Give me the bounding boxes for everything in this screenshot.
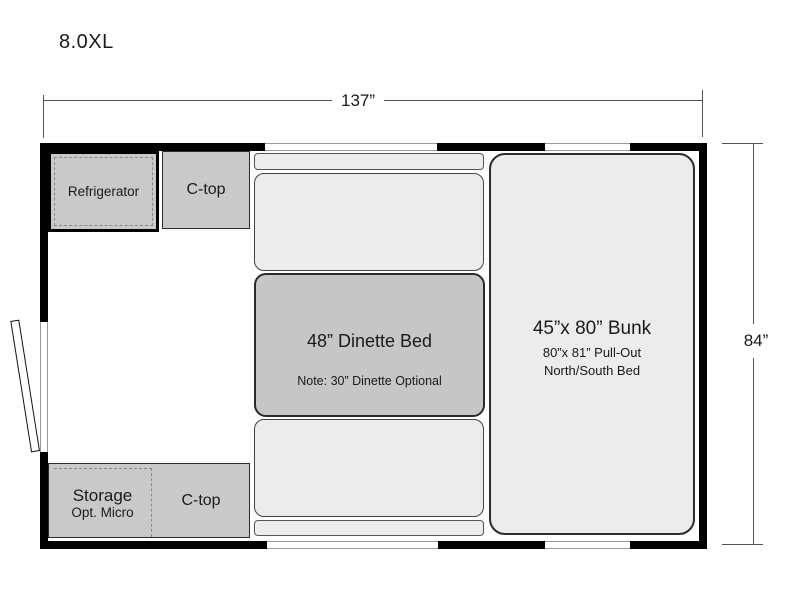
height-dimension-tick-top [722, 143, 763, 144]
dinette-option-note: Note: 30” Dinette Optional [297, 374, 442, 388]
window-bottom-right [545, 541, 630, 549]
bunk-orientation-label: North/South Bed [544, 362, 640, 380]
floorplan-canvas: 8.0XL 137” 84” Refrigerator C-top 48” Di… [0, 0, 800, 600]
dinette-seat-top [254, 173, 484, 271]
storage-label: Storage [73, 486, 133, 505]
refrigerator-dashed-outline: Refrigerator [54, 157, 153, 226]
entry-door-opening [40, 322, 48, 452]
dinette-bed-label: 48” Dinette Bed [307, 331, 432, 352]
storage-micro-label: Opt. Micro [71, 505, 133, 521]
height-dimension-tick-bottom [722, 544, 763, 545]
refrigerator-label: Refrigerator [68, 184, 139, 199]
height-dimension-label: 84” [742, 324, 771, 358]
model-title: 8.0XL [59, 31, 114, 54]
storage-zone: Storage Opt. Micro [54, 468, 152, 537]
window-top-left [265, 143, 437, 151]
refrigerator: Refrigerator [48, 151, 159, 232]
dinette-bed-table: 48” Dinette Bed Note: 30” Dinette Option… [254, 273, 485, 417]
entry-door-leaf [10, 320, 40, 453]
camper-shell-outline: Refrigerator C-top 48” Dinette Bed Note:… [40, 143, 707, 549]
dinette-seat-bottom [254, 419, 484, 517]
dinette-backrest-top [254, 153, 484, 170]
width-dimension-tick-left [43, 95, 44, 138]
countertop-upper: C-top [162, 151, 250, 229]
countertop-lower-label: C-top [153, 464, 249, 537]
width-dimension-label: 137” [332, 90, 384, 112]
window-top-right [545, 143, 630, 151]
dinette-backrest-bottom [254, 520, 484, 536]
width-dimension-tick-right [702, 90, 703, 137]
bunk-size-label: 45”x 80” Bunk [533, 318, 651, 340]
bunk-bed: 45”x 80” Bunk 80”x 81” Pull-Out North/So… [489, 153, 695, 535]
countertop-upper-label: C-top [186, 181, 225, 199]
countertop-lower: Storage Opt. Micro C-top [48, 463, 250, 538]
bunk-pullout-label: 80”x 81” Pull-Out [543, 344, 641, 362]
window-bottom-left [267, 541, 438, 549]
